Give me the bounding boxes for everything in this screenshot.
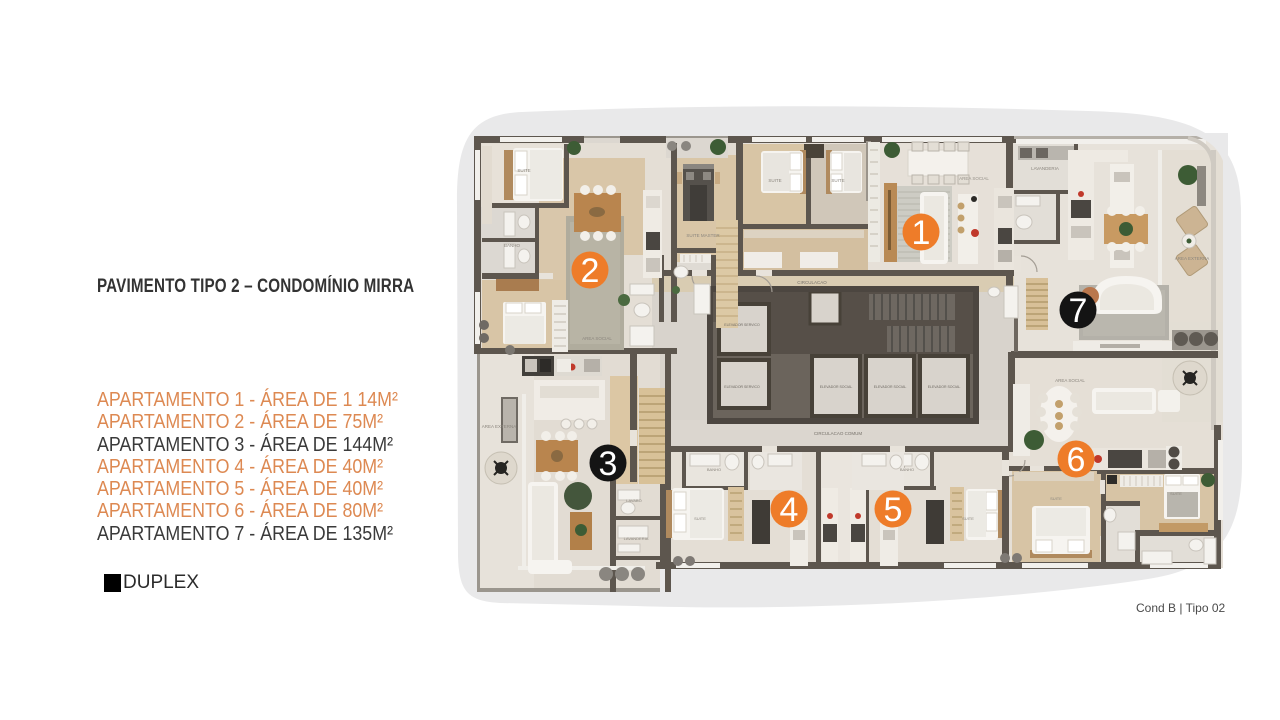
svg-text:CIRCULACAO: CIRCULACAO [797,280,827,285]
svg-text:AREA EXTERNA: AREA EXTERNA [482,424,517,429]
svg-text:ELEVADOR SOCIAL: ELEVADOR SOCIAL [928,385,961,389]
svg-text:BANHO: BANHO [707,467,721,472]
svg-text:SUITE: SUITE [768,178,781,183]
svg-text:3: 3 [599,445,618,483]
svg-text:BANHO: BANHO [504,243,521,248]
svg-text:ELEVADOR SERVICO: ELEVADOR SERVICO [724,323,760,327]
svg-text:LAVABO: LAVABO [626,498,641,503]
svg-text:LAVANDERIA: LAVANDERIA [624,536,649,541]
svg-text:ELEVADOR SERVICO: ELEVADOR SERVICO [724,385,760,389]
svg-text:SUITE: SUITE [694,516,706,521]
svg-text:4: 4 [780,491,799,529]
svg-text:CIRCULACAO COMUM: CIRCULACAO COMUM [814,431,863,436]
svg-text:SUITE: SUITE [1050,496,1062,501]
svg-text:SUITE MASTER: SUITE MASTER [686,233,720,238]
svg-text:1: 1 [912,214,931,252]
svg-text:2: 2 [581,252,600,290]
svg-text:ELEVADOR SOCIAL: ELEVADOR SOCIAL [820,385,853,389]
svg-text:BANHO: BANHO [900,467,914,472]
svg-text:SUITE: SUITE [1170,491,1182,496]
svg-text:6: 6 [1067,441,1086,479]
svg-text:7: 7 [1069,292,1088,330]
svg-text:SUITE: SUITE [962,516,974,521]
svg-text:LAVANDERIA: LAVANDERIA [1031,166,1059,171]
svg-text:AREA SOCIAL: AREA SOCIAL [582,336,612,341]
svg-text:SUITE: SUITE [831,178,844,183]
svg-text:SUITE: SUITE [517,168,530,173]
svg-text:AREA SOCIAL: AREA SOCIAL [959,176,989,181]
svg-text:AREA SOCIAL: AREA SOCIAL [1055,378,1085,383]
svg-text:5: 5 [884,491,903,529]
svg-text:ELEVADOR SOCIAL: ELEVADOR SOCIAL [874,385,907,389]
svg-text:AREA EXTERNA: AREA EXTERNA [1175,256,1210,261]
